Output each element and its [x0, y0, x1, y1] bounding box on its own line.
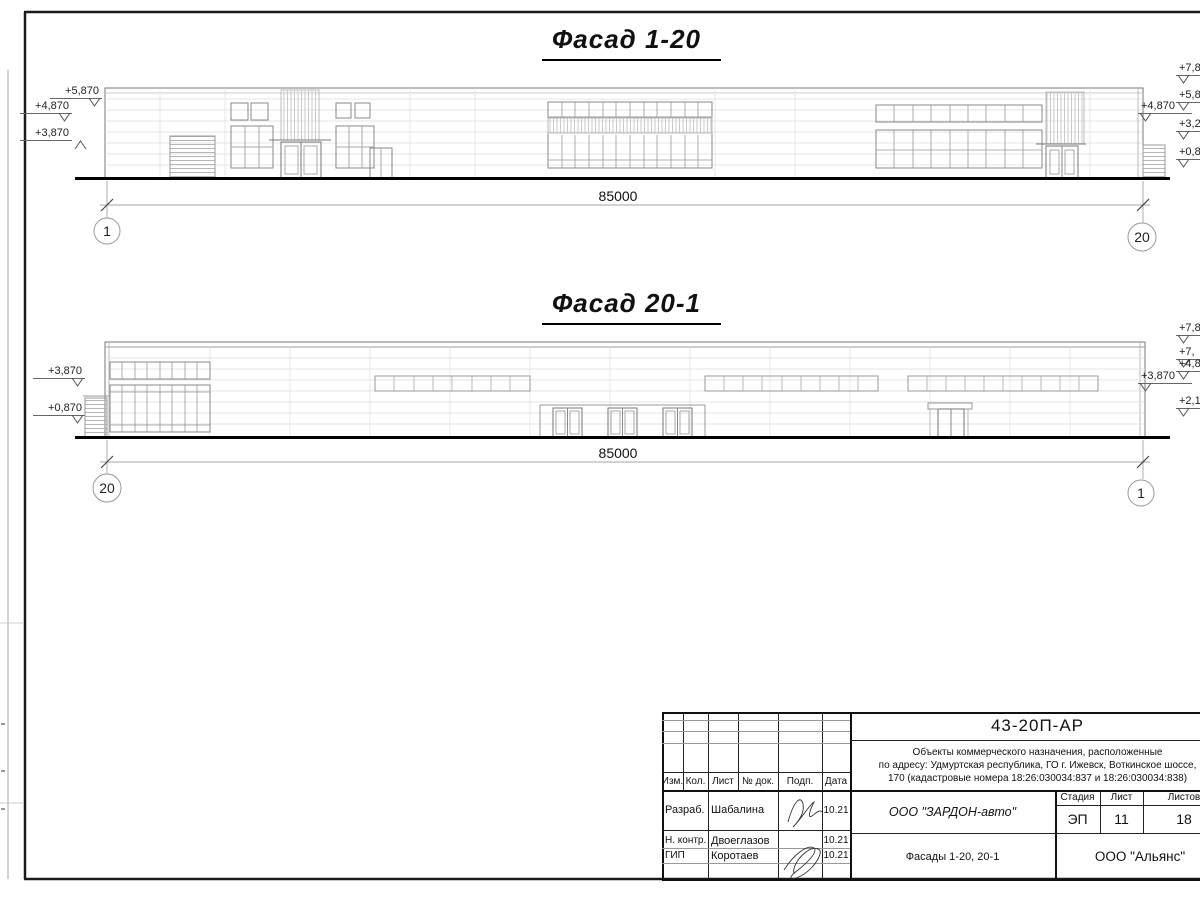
elevation-mark: +3,870: [20, 127, 72, 141]
sheet-number: 11: [1100, 805, 1143, 833]
margin-mark: [1, 723, 5, 725]
project-description-line1: Объекты коммерческого назначения, распол…: [913, 746, 1163, 759]
row-role: Н. контр.: [662, 833, 711, 848]
facade-1-20-title: Фасад 1-20: [542, 24, 721, 61]
doc-number: 43-20П-АР: [850, 712, 1200, 740]
axis-label-20-left: 20: [93, 475, 121, 501]
elevation-mark: +0,87: [1176, 146, 1200, 160]
axis-label-1-left: 1: [94, 218, 120, 244]
row-name: Двоеглазов: [708, 833, 781, 848]
elevation-mark: +3,27: [1176, 118, 1200, 132]
header-izm: Изм.: [662, 772, 683, 790]
row-name: Шабалина: [708, 790, 781, 830]
row-date: 10.21: [822, 833, 850, 848]
row-role: ГИП: [662, 848, 711, 863]
facade-20-1-dimension-label: 85000: [580, 445, 656, 461]
margin-mark: [1, 770, 5, 772]
facade-20-1-title: Фасад 20-1: [542, 288, 721, 325]
axis-label-20-right: 20: [1128, 224, 1156, 250]
elevation-mark: +7,87: [1176, 62, 1200, 76]
stage-label: Стадия: [1055, 790, 1100, 805]
company-name: ООО "ЗАРДОН-авто": [850, 790, 1055, 833]
header-list: Лист: [708, 772, 738, 790]
elevation-mark: +4,870: [20, 100, 72, 114]
header-data: Дата: [822, 772, 850, 790]
drawing-title: Фасады 1-20, 20-1: [850, 833, 1055, 880]
elevation-mark: +3,870: [33, 365, 85, 379]
header-kol: Кол.: [683, 772, 708, 790]
elevation-mark: +7,8: [1176, 322, 1200, 336]
sheet-label: Лист: [1100, 790, 1143, 805]
facade-1-20-dimension-label: 85000: [580, 188, 656, 204]
contractor-name: ООО "Альянс": [1055, 833, 1200, 880]
sheets-total: 18: [1143, 805, 1200, 833]
elevation-mark: +5,870: [50, 85, 102, 99]
elevation-mark: +0,870: [33, 402, 85, 416]
title-block: 43-20П-АР Объекты коммерческого назначен…: [662, 712, 1200, 880]
row-date: 10.21: [822, 790, 850, 830]
project-description: Объекты коммерческого назначения, распол…: [850, 740, 1200, 790]
signature: [778, 836, 824, 880]
row-date: 10.21: [822, 848, 850, 863]
axis-bubbles: [93, 218, 1156, 506]
axis-label-1-right: 1: [1128, 480, 1154, 506]
elevation-mark: +5,87: [1176, 89, 1200, 103]
header-doc: № док.: [738, 772, 778, 790]
stage-value: ЭП: [1055, 805, 1100, 833]
row-name: Коротаев: [708, 848, 781, 863]
elevation-mark: +4,8: [1176, 358, 1200, 372]
elevation-mark: +2,1: [1176, 395, 1200, 409]
row-role: Разраб.: [662, 790, 711, 830]
header-podp: Подп.: [778, 772, 822, 790]
sheets-label: Листов: [1143, 790, 1200, 805]
drawing-sheet: Фасад 1-20 Фасад 20-1 85000 85000 1 20 2…: [0, 0, 1200, 900]
project-description-line2: по адресу: Удмуртская республика, ГО г. …: [879, 759, 1197, 772]
project-description-line3: 170 (кадастровые номера 18:26:030034:837…: [888, 772, 1187, 785]
signature: [780, 792, 824, 830]
margin-mark: [1, 808, 5, 810]
